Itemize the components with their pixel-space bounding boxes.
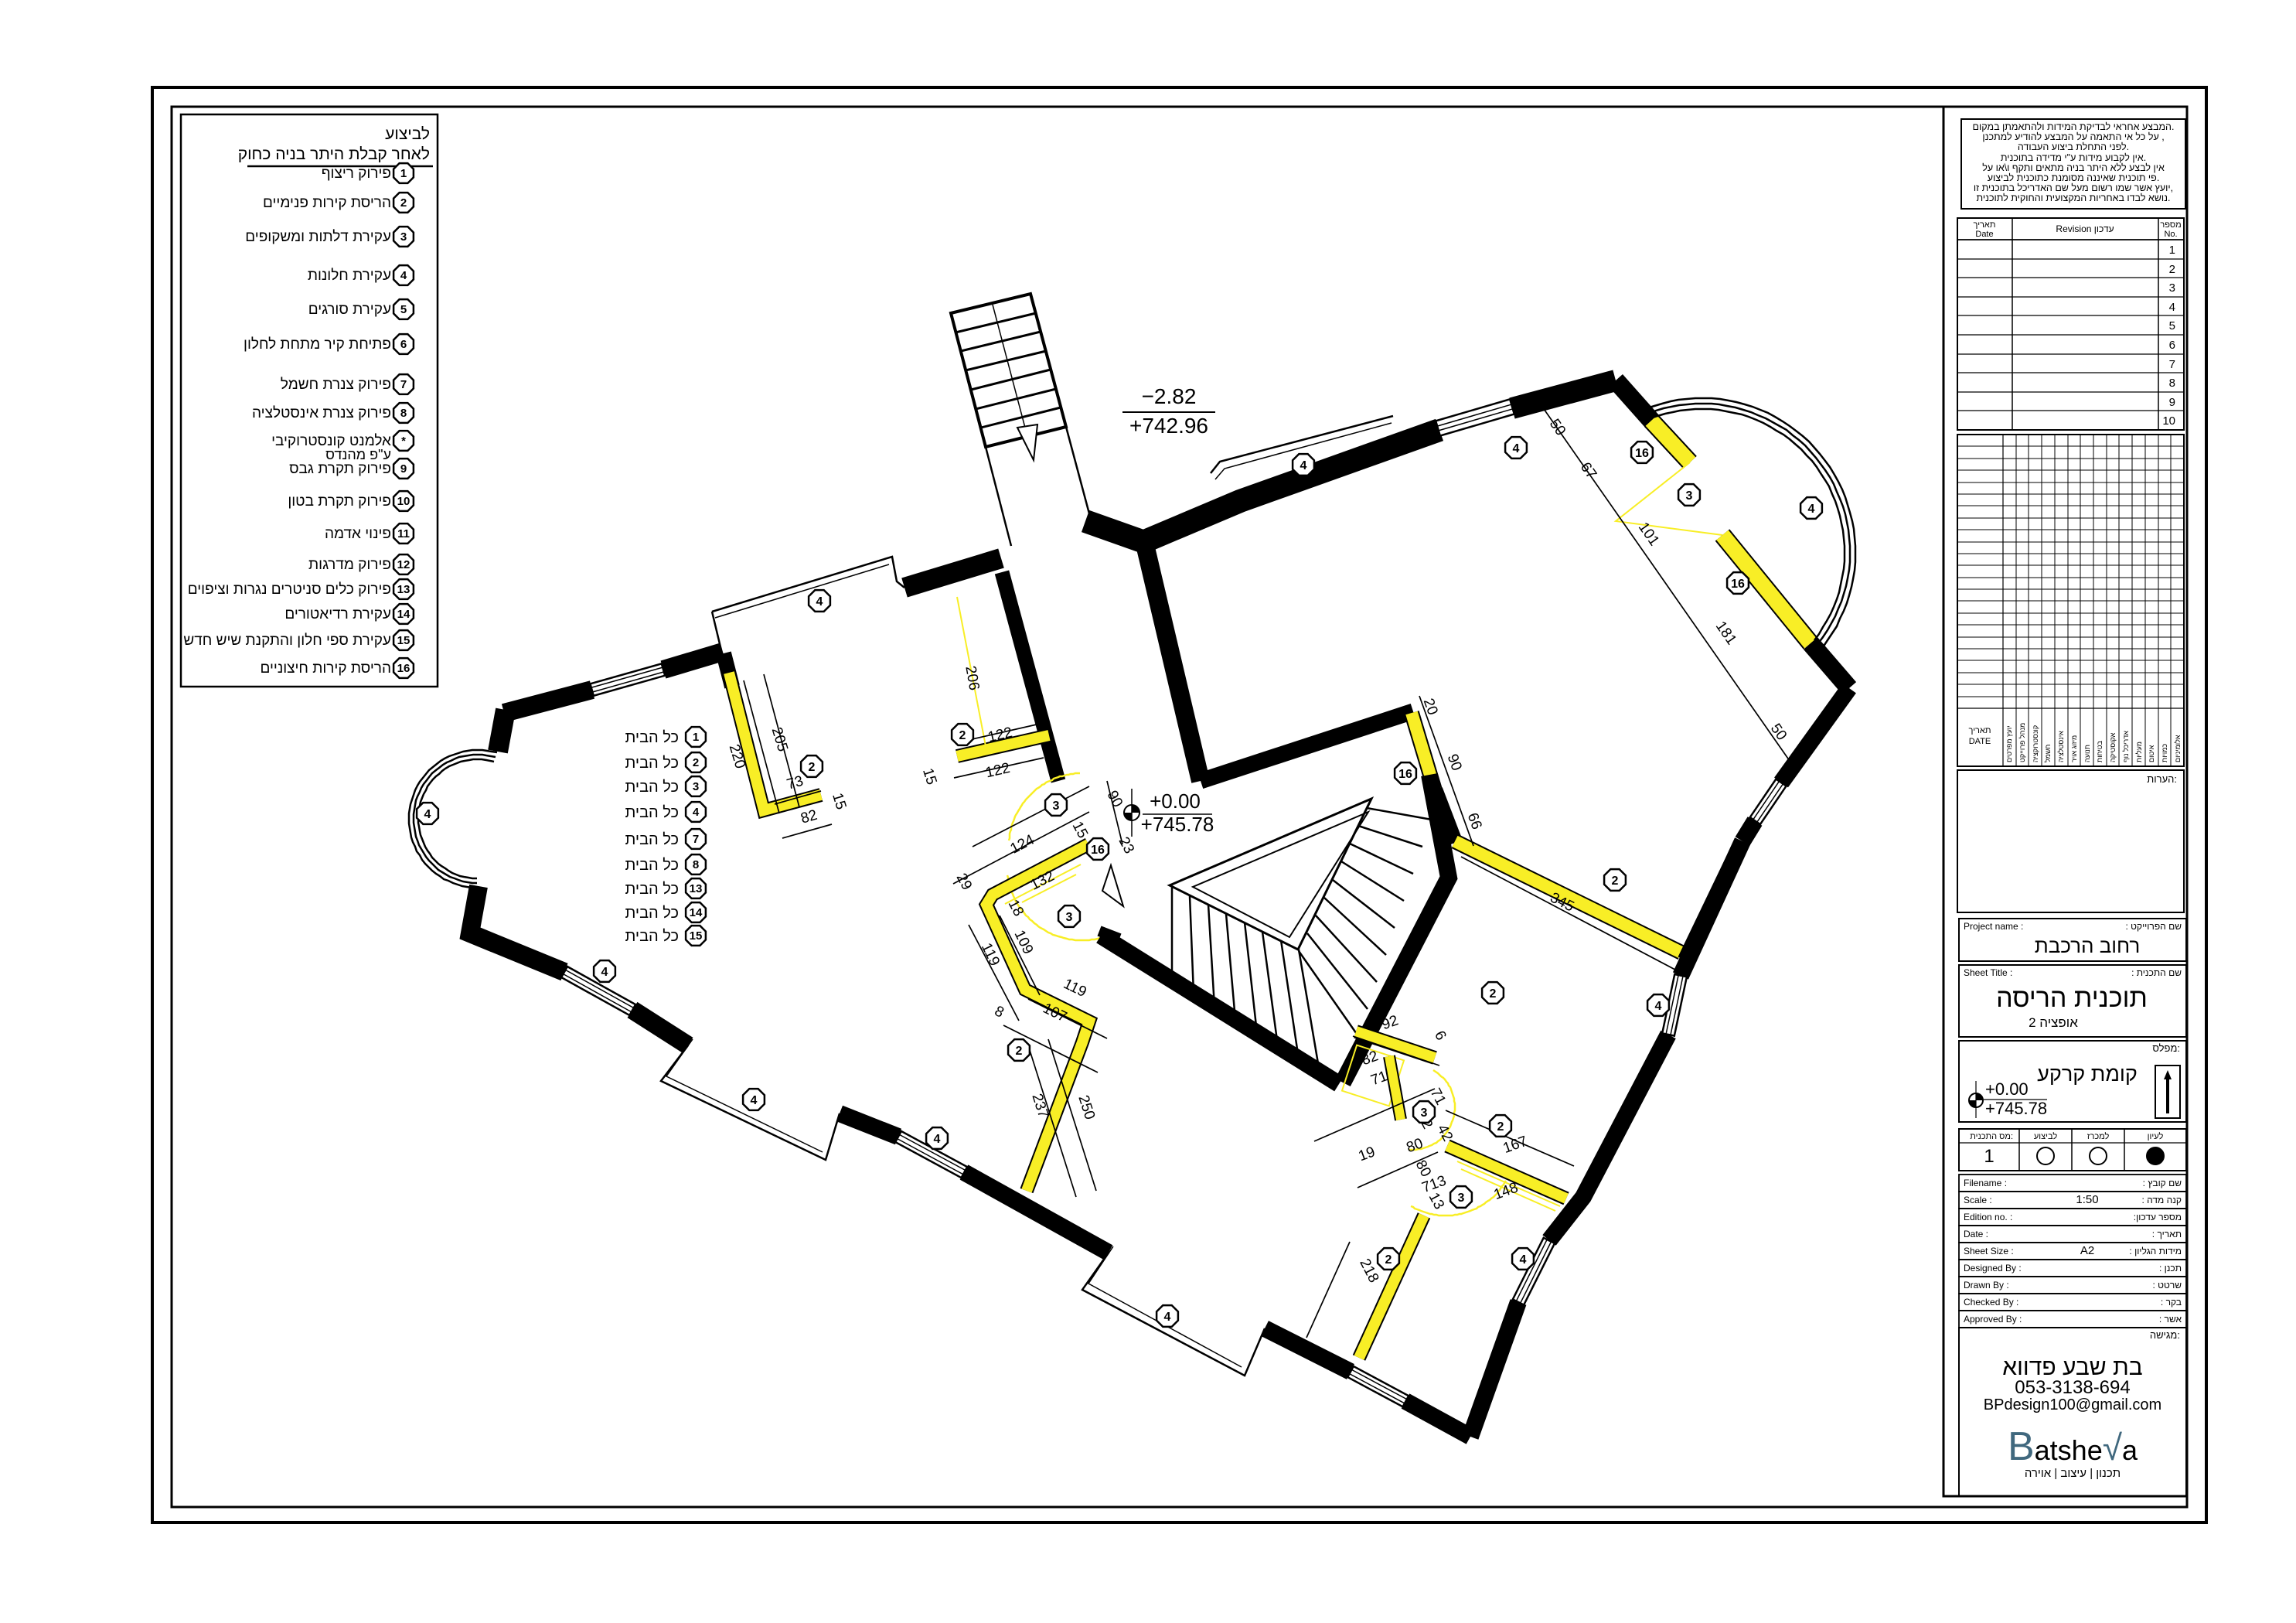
svg-text:כל הבית: כל הבית [625,928,679,945]
svg-text:Edition no. :: Edition no. : [1964,1212,2012,1222]
svg-text:13: 13 [397,583,410,596]
svg-text:A2: A2 [2080,1244,2094,1257]
svg-text:2: 2 [1497,1120,1504,1134]
svg-text:4: 4 [601,966,608,979]
svg-text:תנועה: תנועה [2083,745,2091,762]
svg-text:1: 1 [1984,1146,1994,1167]
svg-text:אקוסטיקה: אקוסטיקה [2109,732,2117,762]
svg-text:16: 16 [1635,447,1649,460]
svg-text:2: 2 [809,761,816,774]
svg-text:14: 14 [690,906,703,919]
svg-text:נושא לבדו באחריות המקצועית והח: נושא לבדו באחריות המקצועית והחוקית לתוכנ… [1976,193,2170,203]
svg-text:פירוק תקרת בטון: פירוק תקרת בטון [288,493,391,510]
svg-text:9: 9 [400,462,407,476]
svg-text:: בקר: : בקר [2161,1297,2182,1308]
svg-text:4: 4 [693,806,700,819]
svg-text:: אשר: : אשר [2159,1314,2182,1325]
svg-text:אלומיניום: אלומיניום [2174,735,2182,762]
svg-text:יועץ אשר שמו רשום מעל שם האדרי: יועץ אשר שמו רשום מעל שם האדריכל בתוכנית… [1974,182,2173,193]
svg-text:7: 7 [693,833,699,846]
svg-text:עקירת חלונות: עקירת חלונות [308,268,391,284]
svg-text:16: 16 [397,662,410,675]
svg-text:הריסת קירות פנימיים: הריסת קירות פנימיים [263,195,391,211]
svg-text:תכנון | עיצוב | אוירה: תכנון | עיצוב | אוירה [2025,1467,2121,1480]
svg-text:1: 1 [693,731,699,744]
svg-text:16: 16 [1091,844,1105,857]
svg-text:4: 4 [1164,1311,1171,1324]
svg-text:4: 4 [751,1094,758,1107]
svg-text:פירוק מדרגות: פירוק מדרגות [308,557,391,573]
svg-text:+0.00: +0.00 [1150,789,1201,813]
svg-text:עקירת סורגים: עקירת סורגים [308,302,391,318]
svg-text:Scale :: Scale : [1964,1195,1992,1205]
svg-text:14: 14 [397,608,410,621]
svg-text:7: 7 [400,378,407,391]
svg-text:2: 2 [693,756,699,769]
svg-text:3: 3 [2169,281,2175,295]
svg-text:Designed By :: Designed By : [1964,1263,2022,1274]
svg-text:4: 4 [424,808,431,821]
svg-text:למכרז: למכרז [2087,1131,2110,1141]
svg-text:: שרטט: : שרטט [2152,1280,2182,1291]
svg-text:10: 10 [2162,414,2175,428]
svg-text:קונסטרוקציה: קונסטרוקציה [2032,725,2039,762]
svg-text:איטום: איטום [2148,745,2155,762]
svg-text:מספר: מספר [2160,220,2181,230]
svg-text:DATE: DATE [1969,737,1991,746]
svg-text:Sheet Title :: Sheet Title : [1964,967,2012,978]
svg-text:8: 8 [693,858,699,871]
svg-text:12: 12 [397,558,410,571]
svg-text:כל הבית: כל הבית [625,831,679,848]
svg-text:2: 2 [1385,1253,1392,1267]
svg-text:10: 10 [397,495,410,508]
svg-text:פירוק צנרת אינסטלציה: פירוק צנרת אינסטלציה [252,405,391,421]
svg-text:No.: No. [2164,230,2177,239]
svg-text:פתיחת קיר מתחת לחלון: פתיחת קיר מתחת לחלון [244,336,391,353]
svg-text:על כל אי התאמה על המבצע להודיע: על כל אי התאמה על המבצע להודיע למתכנן , [1982,131,2164,142]
svg-text:3: 3 [1686,489,1693,503]
svg-text:2: 2 [1016,1045,1023,1058]
svg-text:פי תוכנית שאיננה מסומנת כתוכני: פי תוכנית שאיננה מסומנת כתוכנית לביצוע. [1988,172,2160,183]
svg-text:3: 3 [693,780,699,793]
svg-text:: קנה מדה: : קנה מדה [2141,1195,2182,1205]
svg-text:קומת קרקע: קומת קרקע [2037,1062,2138,1086]
svg-text:אדריכל נוף: אדריכל נוף [2122,731,2130,762]
svg-text:3: 3 [400,230,407,244]
svg-text:אינסטלציה: אינסטלציה [2057,731,2065,762]
svg-text:תאריך: תאריך [1969,726,1991,735]
svg-text:בטיחות: בטיחות [2096,740,2104,762]
svg-text:פירוק כלים סניטרים נגרות וציפו: פירוק כלים סניטרים נגרות וציפוים [188,581,391,598]
svg-text:+0.00: +0.00 [1985,1079,2029,1099]
svg-text:Date :: Date : [1964,1229,1988,1239]
svg-text:3: 3 [1066,911,1073,924]
svg-text:לפני התחלת ביצוע העבודה.: לפני התחלת ביצוע העבודה. [2018,142,2129,152]
svg-text:2: 2 [1612,875,1619,888]
svg-text:מעליות: מעליות [2135,742,2143,762]
svg-text:*: * [401,435,406,448]
svg-text:13: 13 [690,882,703,895]
svg-text:מיזוג אויר: מיזוג אויר [2070,735,2078,762]
svg-text:עקירת רדיאטורים: עקירת רדיאטורים [284,606,391,622]
svg-text:Approved By :: Approved By : [1964,1314,2022,1325]
svg-text:4: 4 [816,595,823,609]
svg-text:6: 6 [2169,339,2175,352]
svg-text:עקירת ספי חלון והתקנת שיש חדש: עקירת ספי חלון והתקנת שיש חדש [183,632,391,649]
svg-text:כל הבית: כל הבית [625,755,679,772]
svg-text:2: 2 [400,196,407,210]
svg-text:: שם התכנית: : שם התכנית [2131,967,2182,978]
svg-text:כל הבית: כל הבית [625,729,679,746]
svg-text:6: 6 [400,338,407,351]
svg-text:לעיון: לעיון [2148,1131,2164,1141]
svg-text:Project name :: Project name : [1964,921,2023,932]
svg-text:כל הבית: כל הבית [625,905,679,922]
svg-text:4: 4 [1300,459,1307,472]
svg-text:4: 4 [1520,1253,1527,1267]
svg-text:הריסת קירות חיצוניים: הריסת קירות חיצוניים [260,660,391,677]
svg-text:מגישה:: מגישה: [2150,1329,2180,1341]
svg-text:1: 1 [400,167,407,180]
svg-text:16: 16 [1731,578,1745,591]
svg-text:תוכנית הריסה: תוכנית הריסה [1996,984,2148,1013]
svg-text:: תכנן: : תכנן [2159,1263,2182,1274]
svg-text:3: 3 [1053,800,1060,813]
svg-text:3: 3 [1421,1106,1428,1120]
svg-text:15: 15 [690,929,703,943]
svg-text:4: 4 [2169,301,2175,314]
svg-text:1: 1 [2169,244,2175,257]
svg-text:3: 3 [1458,1192,1465,1205]
svg-text:Revision עדכון: Revision עדכון [2056,223,2114,234]
svg-text:לביצוע: לביצוע [2034,1131,2057,1141]
svg-text:כל הבית: כל הבית [625,779,679,796]
svg-text:כל הבית: כל הבית [625,857,679,874]
svg-text:1:50: 1:50 [2076,1193,2098,1206]
svg-text:המבצע אחראי לבדיקת המידות ולהת: המבצע אחראי לבדיקת המידות ולהתאמתן במקום… [1973,121,2175,132]
svg-text:7: 7 [2169,358,2175,371]
svg-text:אין לבצע ללא היתר בניה מתאים ו: אין לבצע ללא היתר בניה מתאים ותקף ו\או ע… [1982,162,2165,173]
svg-text:8: 8 [400,407,407,420]
svg-text:: תאריך: : תאריך [2152,1229,2182,1239]
svg-text:Checked By :: Checked By : [1964,1297,2018,1308]
svg-text:אופציה 2: אופציה 2 [2029,1015,2078,1030]
svg-text:חשמל: חשמל [2044,745,2052,762]
svg-text:4: 4 [1808,503,1815,516]
svg-text:Filename :: Filename : [1964,1178,2007,1188]
svg-text:: שם הפרוייקט: : שם הפרוייקט [2125,921,2182,932]
svg-text:5: 5 [400,303,407,316]
svg-text:4: 4 [400,269,407,282]
svg-text:לאחר קבלת היתר בניה כחוק: לאחר קבלת היתר בניה כחוק [238,145,430,163]
svg-text:5: 5 [2169,319,2175,332]
svg-text::מספר עדכון: :מספר עדכון [2134,1212,2182,1222]
svg-text:כל הבית: כל הבית [625,804,679,821]
svg-text:מס התכנית:: מס התכנית: [1970,1132,2013,1141]
svg-text:053-3138-694: 053-3138-694 [2015,1377,2130,1398]
svg-text:תאריך: תאריך [1974,220,1996,230]
svg-text:מנהל פרוייקט: מנהל פרוייקט [2018,723,2026,762]
svg-text:Drawn By :: Drawn By : [1964,1280,2009,1291]
svg-text:עקירת דלתות ומשקופים: עקירת דלתות ומשקופים [245,229,391,245]
svg-text:רחוב הרכבת: רחוב הרכבת [2035,934,2141,957]
svg-text:כמויות: כמויות [2161,744,2168,762]
svg-text:2: 2 [959,729,966,742]
svg-text:Sheet Size :: Sheet Size : [1964,1246,2014,1256]
svg-text:ע"פ מהנדס: ע"פ מהנדס [325,447,391,462]
svg-text:−2.82: −2.82 [1142,384,1197,408]
svg-text:16: 16 [1398,768,1412,781]
svg-text:2: 2 [1490,987,1497,1001]
svg-text:9: 9 [2169,396,2175,409]
svg-text:כל הבית: כל הבית [625,881,679,898]
svg-text:הערות:: הערות: [2147,773,2177,785]
svg-text:פירוק תקרת גבס: פירוק תקרת גבס [289,461,391,477]
svg-text:BPdesign100@gmail.com: BPdesign100@gmail.com [1984,1396,2161,1413]
svg-text:+745.78: +745.78 [1985,1099,2047,1118]
svg-text:4: 4 [1513,442,1520,455]
svg-text:8: 8 [2169,377,2175,390]
svg-text:אין לקבוע מידות ע"י מדידה בתוכ: אין לקבוע מידות ע"י מדידה בתוכנית. [2001,152,2146,163]
svg-text:+742.96: +742.96 [1129,414,1208,438]
svg-text:2: 2 [2169,263,2175,276]
svg-text:15: 15 [397,634,410,647]
svg-text:4: 4 [934,1133,941,1146]
svg-text:: מידות הגליון: : מידות הגליון [2129,1246,2182,1256]
svg-text:מפלס:: מפלס: [2152,1042,2180,1054]
svg-text:Date: Date [1975,230,1993,239]
svg-text:פירוק ריצוף: פירוק ריצוף [322,165,391,182]
svg-text:4: 4 [1655,1000,1662,1013]
svg-text:פינוי אדמה: פינוי אדמה [325,526,391,542]
svg-text:לביצוע: לביצוע [385,125,430,143]
svg-text:+745.78: +745.78 [1141,813,1214,836]
svg-text:פירוק צנרת חשמל: פירוק צנרת חשמל [281,377,391,393]
svg-text:יועץ מפרטים: יועץ מפרטים [2005,725,2013,762]
svg-text:11: 11 [397,527,410,540]
svg-text:: שם קובץ: : שם קובץ [2143,1178,2182,1188]
